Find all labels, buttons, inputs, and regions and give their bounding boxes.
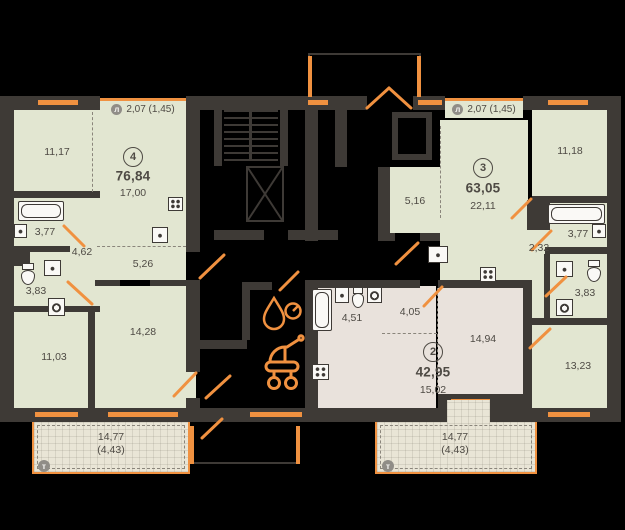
toilet-icon — [20, 263, 36, 285]
apt2-total-area: 42,95 — [416, 365, 451, 380]
wall — [242, 282, 250, 340]
apt3-terrace-area: 14,77 — [442, 431, 468, 443]
window — [38, 100, 78, 105]
wall — [150, 280, 200, 286]
apt3-total-area: 63,05 — [466, 181, 501, 196]
wall — [523, 286, 532, 408]
apt4-number-badge[interactable]: 4 — [123, 147, 143, 167]
window — [35, 412, 78, 417]
wall — [545, 247, 607, 254]
apt3-hall2-area: 2,32 — [529, 242, 549, 254]
kitchen-sink-icon — [152, 227, 168, 243]
bathtub-icon — [312, 289, 332, 331]
toilet-icon — [351, 287, 365, 308]
apt3-number-badge[interactable]: 3 — [473, 158, 493, 178]
wall — [305, 110, 318, 241]
terrace-icon: т — [382, 460, 394, 472]
wall — [335, 96, 347, 167]
bathtub-icon — [18, 201, 64, 221]
apt4-terrace-area: 14,77 — [98, 431, 124, 443]
loggia-icon: л — [452, 104, 463, 115]
wall — [280, 110, 288, 166]
terrace-icon: т — [38, 460, 50, 472]
sink-icon — [592, 224, 606, 238]
stove-icon — [168, 197, 183, 211]
wall — [440, 398, 447, 422]
washing-machine-icon — [48, 298, 65, 316]
sink-icon — [335, 287, 349, 303]
apt4-wc-area: 3,83 — [26, 285, 46, 297]
stove-icon — [312, 364, 329, 380]
wall — [523, 318, 607, 325]
water-meter-icon — [264, 298, 301, 329]
wall — [14, 191, 100, 198]
apt4-room2-area: 14,28 — [130, 326, 156, 338]
apt3-terrace-notch — [447, 400, 490, 424]
wall — [544, 254, 550, 318]
apt2-room-area: 15,02 — [420, 384, 446, 396]
apt3-wc-area: 3,83 — [575, 287, 595, 299]
stair-rail — [249, 104, 252, 161]
loggia-icon: л — [111, 104, 122, 115]
wall — [88, 312, 95, 408]
sink-icon — [14, 224, 27, 238]
wall — [186, 398, 200, 422]
apt4-room-14-28[interactable] — [95, 286, 196, 408]
porch-post — [190, 426, 194, 464]
wall — [378, 167, 390, 233]
wall — [214, 110, 222, 166]
toilet-icon — [586, 260, 602, 282]
dashed-boundary — [92, 112, 93, 192]
dashed-boundary — [97, 246, 186, 247]
window — [250, 412, 302, 417]
upper-porch — [308, 53, 421, 97]
dashed-boundary — [382, 333, 437, 334]
apt3-room2-area: 13,23 — [565, 360, 591, 372]
apt4-terrace-inner: (4,43) — [97, 444, 124, 456]
apt3-terrace-inner: (4,43) — [441, 444, 468, 456]
sink-icon — [44, 260, 61, 276]
window — [418, 100, 442, 105]
wall — [186, 340, 247, 349]
floor-plan: л 2,07 (1,45) л 2,07 (1,45) — [0, 0, 625, 530]
wall — [0, 96, 14, 422]
wall — [242, 282, 272, 290]
sink-icon — [556, 261, 573, 277]
wall — [95, 280, 120, 286]
apt4-loggia[interactable]: л 2,07 (1,45) — [100, 98, 186, 118]
apt3-loggia-area: 2,07 (1,45) — [467, 104, 515, 115]
wall — [186, 110, 200, 252]
apt4-corridor-area: 5,26 — [133, 258, 153, 270]
apt2-hall-area: 4,05 — [400, 306, 420, 318]
apt3-loggia[interactable]: л 2,07 (1,45) — [445, 98, 523, 118]
window — [548, 412, 590, 417]
apt3-hall-area: 5,16 — [405, 195, 425, 207]
stove-icon — [480, 267, 496, 282]
apt2-bath-area: 4,51 — [342, 312, 362, 324]
wall — [378, 233, 395, 241]
apt4-bath-area: 3,77 — [35, 226, 55, 238]
apt4-room1-area: 11,17 — [44, 146, 70, 158]
apt3-bath-area: 3,77 — [568, 228, 588, 240]
kitchen-sink-icon — [428, 246, 448, 263]
window — [548, 100, 588, 105]
porch-edge — [190, 462, 300, 464]
bathtub-icon — [548, 204, 605, 224]
wall — [420, 233, 440, 241]
stroller-icon — [266, 336, 303, 389]
porch-post — [308, 56, 312, 97]
apt3-kitchen-area: 22,11 — [470, 200, 496, 212]
apt4-total-area: 76,84 — [116, 169, 151, 184]
apt4-kitchen-area: 17,00 — [120, 187, 146, 199]
apt3-room1-area: 11,18 — [557, 145, 583, 157]
apt2-number-badge[interactable]: 2 — [423, 342, 443, 362]
apt4-room3-area: 11,03 — [41, 351, 67, 363]
window — [308, 100, 328, 105]
wall — [214, 230, 264, 240]
porch-post — [296, 426, 300, 464]
elevator — [246, 166, 284, 222]
wall — [186, 280, 200, 372]
wall — [527, 200, 550, 230]
apt2-room2-area: 14,94 — [470, 333, 496, 345]
dashed-boundary — [440, 126, 441, 218]
porch-post — [417, 56, 421, 97]
duct-box — [392, 112, 432, 160]
window — [108, 412, 178, 417]
washing-machine-icon — [367, 287, 382, 303]
apt4-hall-area: 4,62 — [72, 246, 92, 258]
apt4-loggia-area: 2,07 (1,45) — [126, 104, 174, 115]
washing-machine-icon — [556, 299, 573, 316]
wall — [607, 96, 621, 422]
wall — [490, 398, 497, 422]
